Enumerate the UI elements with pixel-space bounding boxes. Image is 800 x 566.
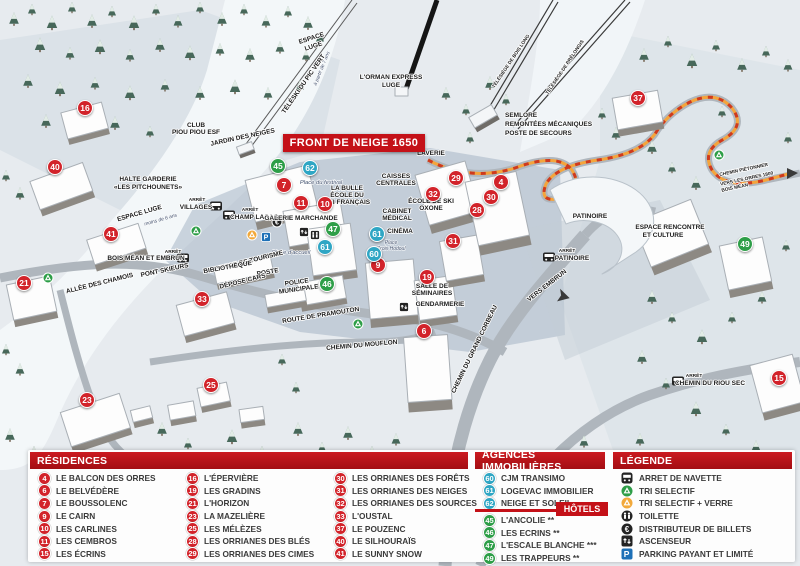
svg-text:CINÉMA: CINÉMA	[387, 226, 413, 235]
svg-text:OXONE: OXONE	[419, 205, 443, 212]
svg-text:ÉCOLE DU: ÉCOLE DU	[330, 190, 364, 199]
svg-text:SALLE DE: SALLE DE	[416, 283, 449, 290]
recycle-glass-icon	[621, 497, 633, 509]
map-marker-agency[interactable]: 61	[369, 226, 385, 242]
agency-number-badge: 61	[483, 484, 496, 497]
hotel-name: LES TRAPPEURS **	[501, 553, 579, 563]
svg-text:CLUB: CLUB	[187, 122, 205, 129]
map-marker-residence[interactable]: 33	[194, 291, 210, 307]
svg-text:ET CULTURE: ET CULTURE	[643, 232, 684, 239]
residence-name: LE BELVÉDÈRE	[56, 486, 119, 496]
recycle-green-icon	[621, 485, 633, 497]
residence-name: L'HORIZON	[204, 498, 249, 508]
residence-item: 15 LES ÉCRINS	[38, 548, 156, 561]
residence-item: 31 LES ORRIANES DES NEIGES	[334, 485, 477, 498]
residence-number-badge: 21	[186, 497, 199, 510]
svg-text:GALERIE MARCHANDE: GALERIE MARCHANDE	[264, 215, 338, 222]
residence-name: LE CAIRN	[56, 511, 95, 521]
residence-number-badge: 11	[38, 535, 51, 548]
legend-item: P PARKING PAYANT ET LIMITÉ	[621, 548, 753, 561]
recycle-icon	[353, 319, 363, 329]
residence-item: 23 LA MAZELIÈRE	[186, 510, 314, 523]
residence-number-badge: 28	[186, 535, 199, 548]
map-marker-residence[interactable]: 21	[16, 275, 32, 291]
residence-name: LES ORRIANES DES NEIGES	[352, 486, 467, 496]
elevator-icon	[300, 228, 309, 237]
atm-euro-icon: €	[621, 523, 633, 535]
parking-icon: P	[621, 548, 633, 560]
residence-name: LE BOUSSOLENC	[56, 498, 127, 508]
residence-number-badge: 16	[186, 472, 199, 485]
legend-item: TOILETTE	[621, 510, 753, 523]
toilet-icon	[311, 231, 320, 240]
legend-label: PARKING PAYANT ET LIMITÉ	[639, 549, 753, 559]
map-marker-residence[interactable]: 4	[493, 174, 509, 190]
svg-text:CENTRALES: CENTRALES	[376, 180, 416, 187]
map-marker-residence[interactable]: 25	[203, 377, 219, 393]
residence-item: 41 LE SUNNY SNOW	[334, 548, 477, 561]
map-marker-residence[interactable]: 30	[483, 189, 499, 205]
svg-text:BOIS MÉAN ET EMBRUN: BOIS MÉAN ET EMBRUN	[107, 253, 185, 262]
recycle-icon	[714, 150, 724, 160]
residence-number-badge: 19	[186, 484, 199, 497]
residence-number-badge: 33	[334, 510, 347, 523]
residence-number-badge: 29	[186, 547, 199, 560]
residence-name: LES ÉCRINS	[56, 549, 106, 559]
residence-number-badge: 25	[186, 522, 199, 535]
residence-name: LA MAZELIÈRE	[204, 511, 265, 521]
elevator-icon	[621, 535, 633, 547]
residences-header: RÉSIDENCES	[30, 452, 468, 469]
parking-icon	[262, 233, 271, 242]
svg-text:PATINOIRE: PATINOIRE	[573, 213, 608, 220]
legend-label: TRI SELECTIF	[639, 486, 695, 496]
map-marker-residence[interactable]: 29	[448, 170, 464, 186]
residence-name: L'ÉPERVIÈRE	[204, 473, 258, 483]
residence-item: 33 L'OUSTAL	[334, 510, 477, 523]
map-marker-residence[interactable]: 19	[419, 269, 435, 285]
resort-map-page: € P	[0, 0, 800, 566]
legend-panel: RÉSIDENCES 4 LE BALCON DES ORRES 6 LE BE…	[28, 450, 795, 562]
residence-name: LES MÉLÈZES	[204, 524, 262, 534]
map-marker-residence[interactable]: 32	[425, 186, 441, 202]
residences-col3: 30 LES ORRIANES DES FORÊTS 31 LES ORRIAN…	[334, 472, 477, 560]
legend-item: TRI SELECTIF + VERRE	[621, 497, 753, 510]
map-marker-hotel[interactable]: 49	[737, 236, 753, 252]
legend-label: TRI SELECTIF + VERRE	[639, 498, 733, 508]
map-marker-residence[interactable]: 7	[276, 177, 292, 193]
agency-item: 61 LOGEVAC IMMOBILIER	[483, 485, 594, 498]
agency-name: CJM TRANSIMO	[501, 473, 565, 483]
svg-text:CAISSES: CAISSES	[382, 173, 411, 180]
recycle-icon	[191, 226, 201, 236]
map-marker-hotel[interactable]: 47	[325, 221, 341, 237]
legende-header: LÉGENDE	[613, 452, 792, 469]
residence-item: 19 LES GRADINS	[186, 485, 314, 498]
hotel-number-badge: 46	[483, 526, 496, 539]
residence-number-badge: 32	[334, 497, 347, 510]
residence-name: LES ORRIANES DES CIMES	[204, 549, 314, 559]
map-marker-agency[interactable]: 60	[366, 246, 382, 262]
hotel-number-badge: 45	[483, 514, 496, 527]
residence-name: LES CARLINES	[56, 524, 117, 534]
residence-name: LES CEMBROS	[56, 536, 117, 546]
residence-name: LE SUNNY SNOW	[352, 549, 422, 559]
svg-text:SEMLORE: SEMLORE	[505, 112, 538, 119]
svg-text:P: P	[624, 549, 630, 559]
residences-col1: 4 LE BALCON DES ORRES 6 LE BELVÉDÈRE 7 L…	[38, 472, 156, 560]
residence-item: 6 LE BELVÉDÈRE	[38, 485, 156, 498]
svg-text:GENDARMERIE: GENDARMERIE	[416, 301, 465, 308]
residence-number-badge: 15	[38, 547, 51, 560]
map-marker-residence[interactable]: 41	[103, 226, 119, 242]
hotel-number-badge: 49	[483, 552, 496, 565]
residence-name: LE SILHOURAÏS	[352, 536, 416, 546]
legend-label: TOILETTE	[639, 511, 679, 521]
legend-item: ARRET DE NAVETTE	[621, 472, 753, 485]
hotel-item: 46 LES ECRINS **	[483, 527, 597, 540]
front-de-neige-badge: FRONT DE NEIGE 1650	[283, 134, 425, 152]
map-marker-residence[interactable]: 23	[79, 392, 95, 408]
svg-text:Place du festival: Place du festival	[300, 180, 343, 186]
recycle-glass-icon	[247, 230, 257, 240]
hotels-list: 45 L'ANCOLIE ** 46 LES ECRINS ** 47 L'ES…	[483, 514, 597, 564]
legend-item: TRI SELECTIF	[621, 485, 753, 498]
residence-item: 28 LES ORRIANES DES BLÉS	[186, 535, 314, 548]
residence-number-badge: 4	[38, 472, 51, 485]
hotel-item: 49 LES TRAPPEURS **	[483, 552, 597, 565]
residence-item: 10 LES CARLINES	[38, 522, 156, 535]
residence-number-badge: 9	[38, 510, 51, 523]
residence-number-badge: 40	[334, 535, 347, 548]
legend-item: ASCENSEUR	[621, 535, 753, 548]
elevator-icon	[400, 303, 409, 312]
residence-name: LES GRADINS	[204, 486, 261, 496]
hotel-name: L'ANCOLIE **	[501, 515, 554, 525]
bus-icon	[621, 472, 633, 484]
residence-number-badge: 10	[38, 522, 51, 535]
residence-item: 11 LES CEMBROS	[38, 535, 156, 548]
bus-stop-icon[interactable]	[543, 253, 555, 262]
residence-number-badge: 23	[186, 510, 199, 523]
residence-item: 16 L'ÉPERVIÈRE	[186, 472, 314, 485]
legend-label: ASCENSEUR	[639, 536, 691, 546]
map-marker-residence[interactable]: 10	[317, 196, 333, 212]
residence-item: 30 LES ORRIANES DES FORÊTS	[334, 472, 477, 485]
map-marker-residence[interactable]: 11	[293, 195, 309, 211]
hotel-item: 47 L'ESCALE BLANCHE ***	[483, 539, 597, 552]
map-marker-agency[interactable]: 62	[302, 160, 318, 176]
map-marker-residence[interactable]: 16	[77, 100, 93, 116]
residence-number-badge: 31	[334, 484, 347, 497]
residence-name: LE POUZENC	[352, 524, 405, 534]
svg-text:PATINOIRE: PATINOIRE	[555, 255, 590, 262]
agency-name: LOGEVAC IMMOBILIER	[501, 486, 594, 496]
residence-item: 25 LES MÉLÈZES	[186, 522, 314, 535]
residence-item: 32 LES ORRIANES DES SOURCES	[334, 497, 477, 510]
residence-item: 21 L'HORIZON	[186, 497, 314, 510]
svg-text:€: €	[625, 524, 630, 533]
svg-text:POSTE DE SECOURS: POSTE DE SECOURS	[505, 130, 572, 137]
residence-number-badge: 7	[38, 497, 51, 510]
residence-name: LES ORRIANES DES SOURCES	[352, 498, 477, 508]
residence-item: 9 LE CAIRN	[38, 510, 156, 523]
hotel-item: 45 L'ANCOLIE **	[483, 514, 597, 527]
map-marker-residence[interactable]: 28	[469, 202, 485, 218]
svg-text:PIOU PIOU ESF: PIOU PIOU ESF	[172, 129, 220, 136]
residences-col2: 16 L'ÉPERVIÈRE 19 LES GRADINS 21 L'HORIZ…	[186, 472, 314, 560]
svg-text:HALTE GARDERIE: HALTE GARDERIE	[119, 176, 177, 183]
svg-text:CHEMIN DU RIOU SEC: CHEMIN DU RIOU SEC	[675, 380, 745, 387]
svg-text:ESPACE RENCONTRE: ESPACE RENCONTRE	[635, 224, 705, 231]
residence-name: LES ORRIANES DES BLÉS	[204, 536, 310, 546]
map-marker-residence[interactable]: 6	[416, 323, 432, 339]
residence-number-badge: 37	[334, 522, 347, 535]
svg-text:LUGE: LUGE	[382, 82, 401, 89]
svg-text:REMONTÉES MÉCANIQUES: REMONTÉES MÉCANIQUES	[505, 119, 593, 128]
map-marker-residence[interactable]: 15	[771, 370, 787, 386]
residence-number-badge: 41	[334, 547, 347, 560]
residence-name: LES ORRIANES DES FORÊTS	[352, 473, 470, 483]
svg-text:LA BULLE: LA BULLE	[331, 185, 364, 192]
agency-item: 60 CJM TRANSIMO	[483, 472, 594, 485]
svg-text:VILLAGES: VILLAGES	[180, 204, 213, 211]
legend-item: € DISTRIBUTEUR DE BILLETS	[621, 522, 753, 535]
recycle-icon	[43, 273, 53, 283]
hotel-number-badge: 47	[483, 539, 496, 552]
residence-item: 4 LE BALCON DES ORRES	[38, 472, 156, 485]
residence-number-badge: 6	[38, 484, 51, 497]
svg-text:SÉMINAIRES: SÉMINAIRES	[412, 288, 453, 297]
hotel-name: L'ESCALE BLANCHE ***	[501, 540, 597, 550]
map-marker-hotel[interactable]: 46	[319, 276, 335, 292]
residence-name: LE BALCON DES ORRES	[56, 473, 156, 483]
residence-item: 29 LES ORRIANES DES CIMES	[186, 548, 314, 561]
map-marker-residence[interactable]: 40	[47, 159, 63, 175]
residence-name: L'OUSTAL	[352, 511, 393, 521]
map-marker-residence[interactable]: 37	[630, 90, 646, 106]
map-marker-residence[interactable]: 31	[445, 233, 461, 249]
toilet-icon	[621, 510, 633, 522]
map-marker-agency[interactable]: 61	[317, 239, 333, 255]
svg-text:«LES PITCHOUNETS»: «LES PITCHOUNETS»	[114, 184, 183, 191]
residence-item: 40 LE SILHOURAÏS	[334, 535, 477, 548]
residence-item: 37 LE POUZENC	[334, 522, 477, 535]
legend-label: DISTRIBUTEUR DE BILLETS	[639, 524, 751, 534]
svg-text:L'ORMAN EXPRESS: L'ORMAN EXPRESS	[360, 74, 423, 81]
legend-label: ARRET DE NAVETTE	[639, 473, 722, 483]
legende-list: ARRET DE NAVETTE TRI SELECTIF TRI SELECT…	[621, 472, 753, 560]
map-marker-hotel[interactable]: 45	[270, 158, 286, 174]
hotel-name: LES ECRINS **	[501, 528, 560, 538]
agency-number-badge: 60	[483, 472, 496, 485]
svg-text:MÉDICAL: MÉDICAL	[382, 213, 412, 222]
agences-header: AGENCES IMMOBILIÈRES	[475, 452, 605, 469]
svg-text:CABINET: CABINET	[383, 208, 412, 215]
residence-number-badge: 30	[334, 472, 347, 485]
residence-item: 7 LE BOUSSOLENC	[38, 497, 156, 510]
